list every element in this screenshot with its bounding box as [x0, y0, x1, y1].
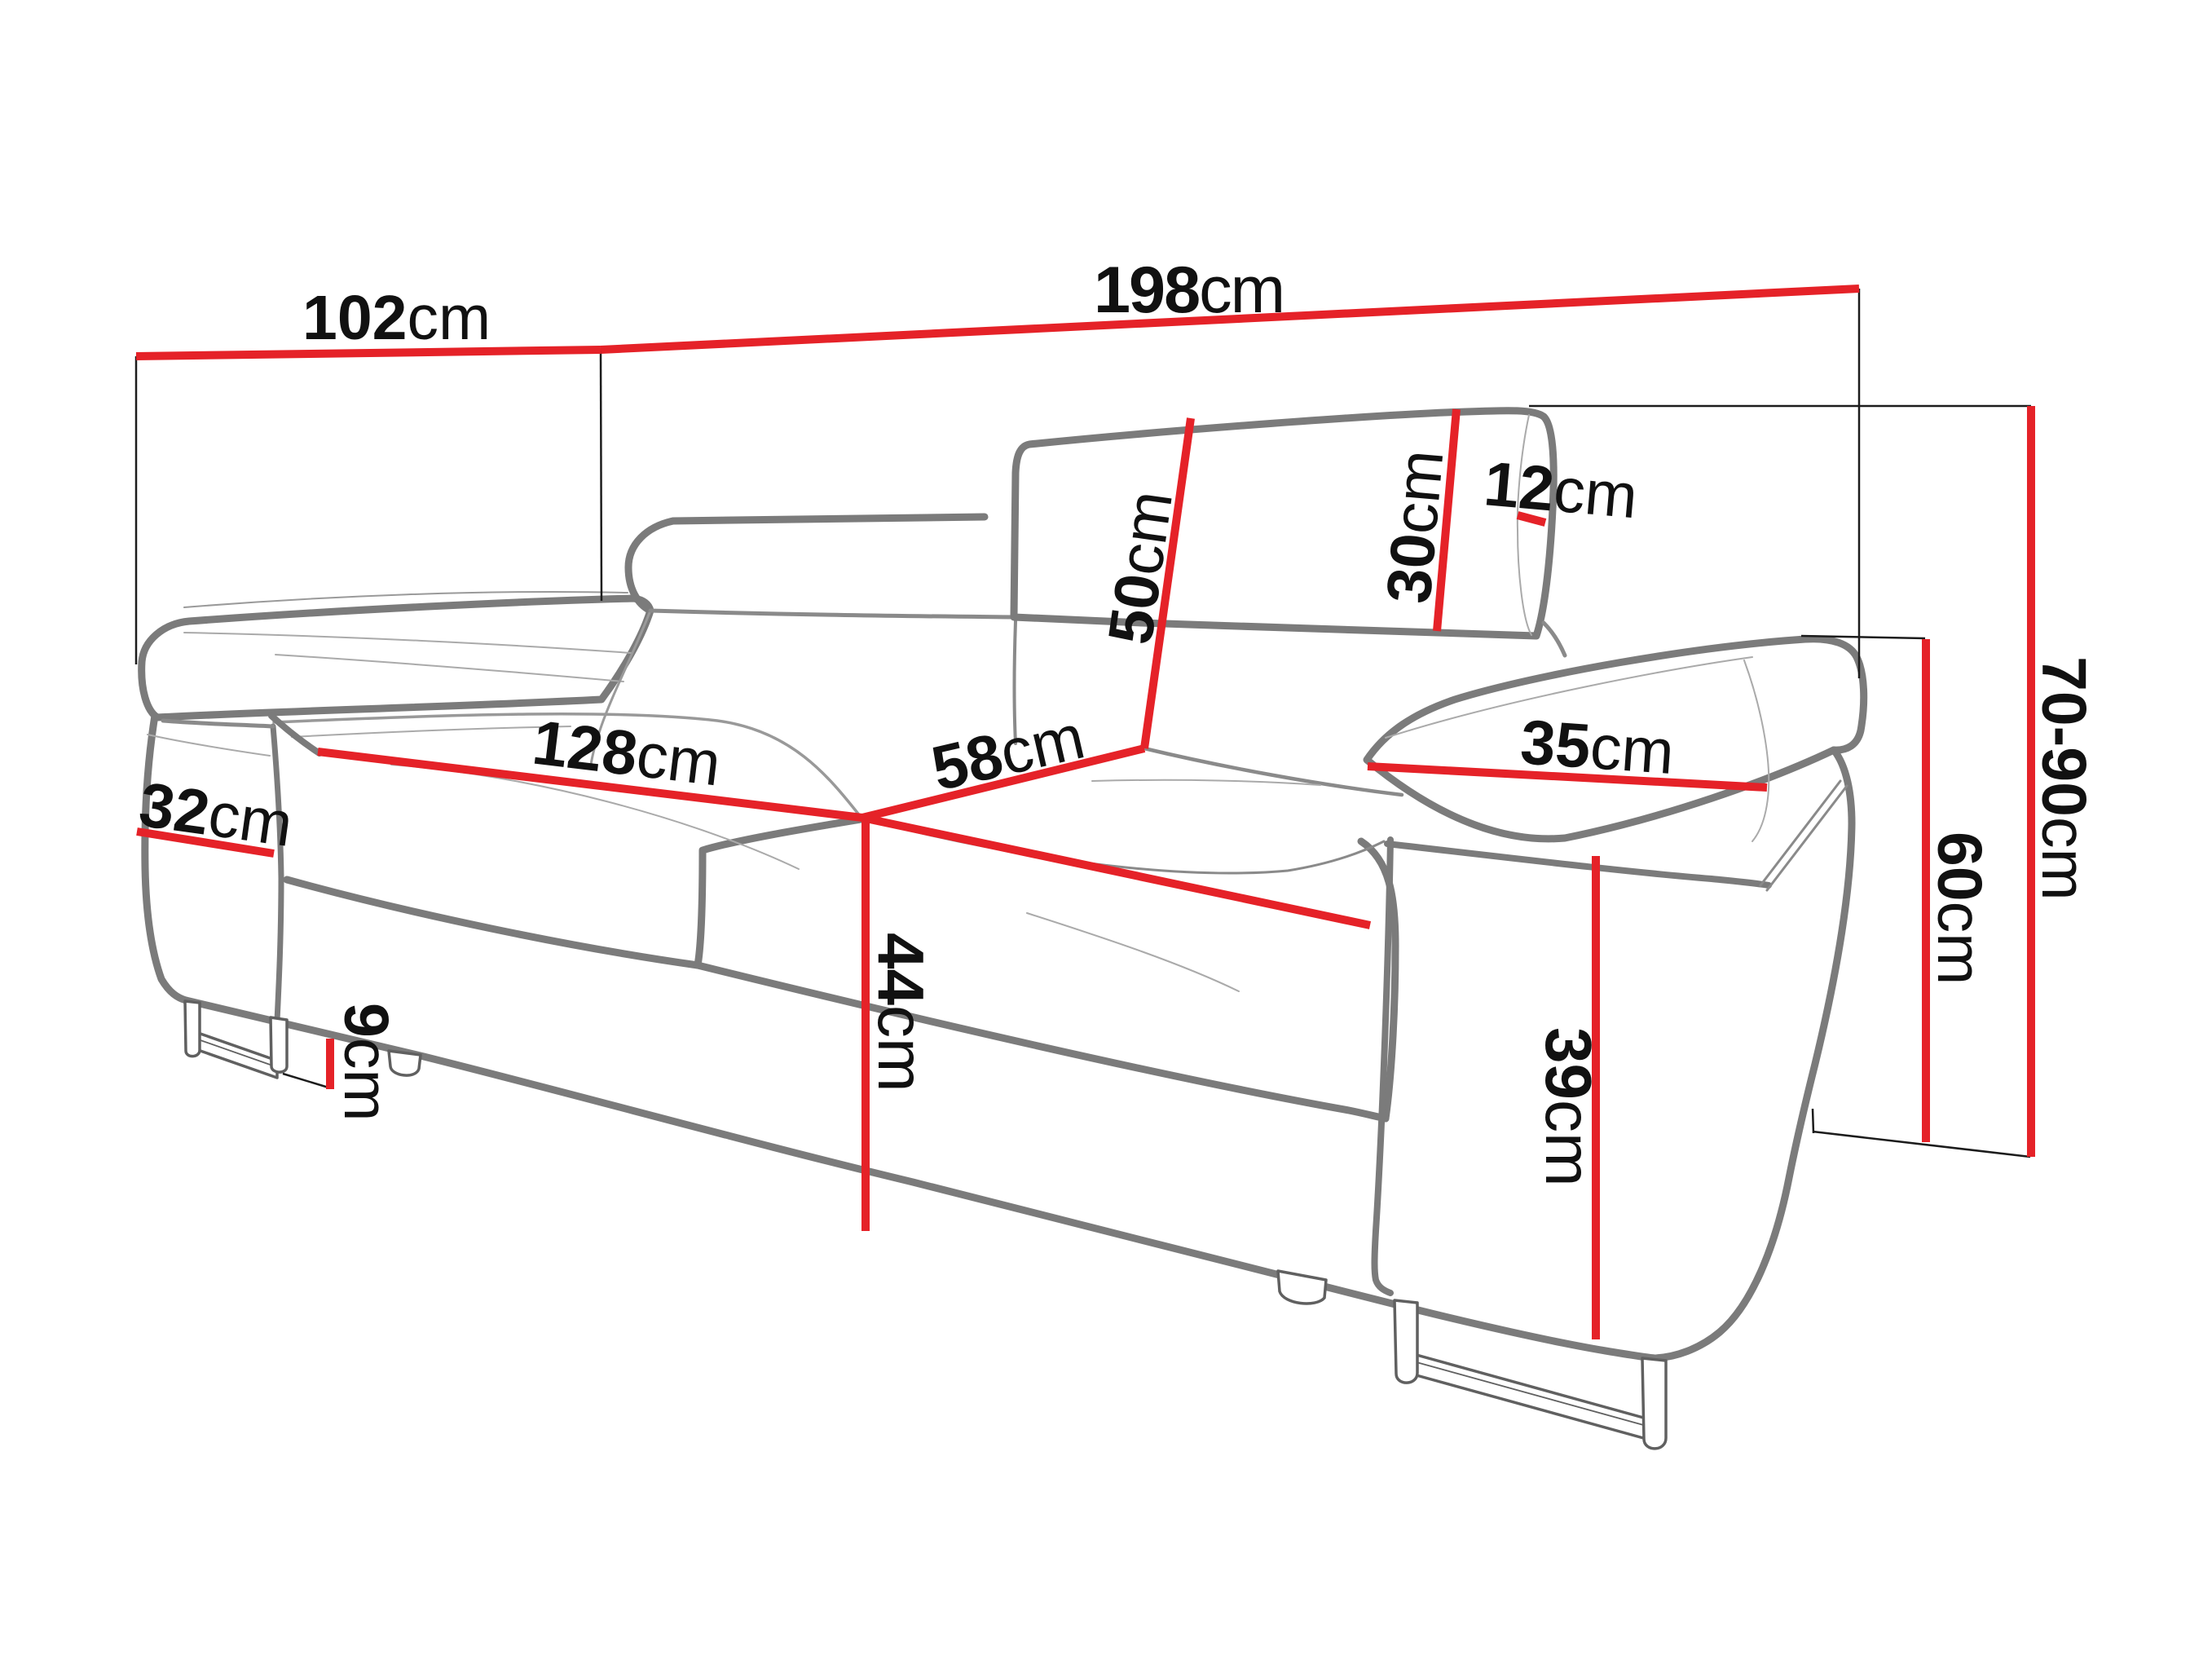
svg-text:60cm: 60cm: [1924, 832, 1994, 985]
svg-text:102cm: 102cm: [302, 283, 491, 353]
svg-text:198cm: 198cm: [1094, 254, 1284, 327]
svg-text:12cm: 12cm: [1482, 448, 1641, 532]
svg-text:39cm: 39cm: [1532, 1027, 1605, 1187]
svg-text:44cm: 44cm: [865, 933, 937, 1092]
svg-text:9cm: 9cm: [331, 1003, 401, 1121]
svg-text:30cm: 30cm: [1373, 447, 1456, 606]
svg-text:35cm: 35cm: [1518, 707, 1677, 788]
svg-text:70-90cm: 70-90cm: [2029, 656, 2099, 901]
